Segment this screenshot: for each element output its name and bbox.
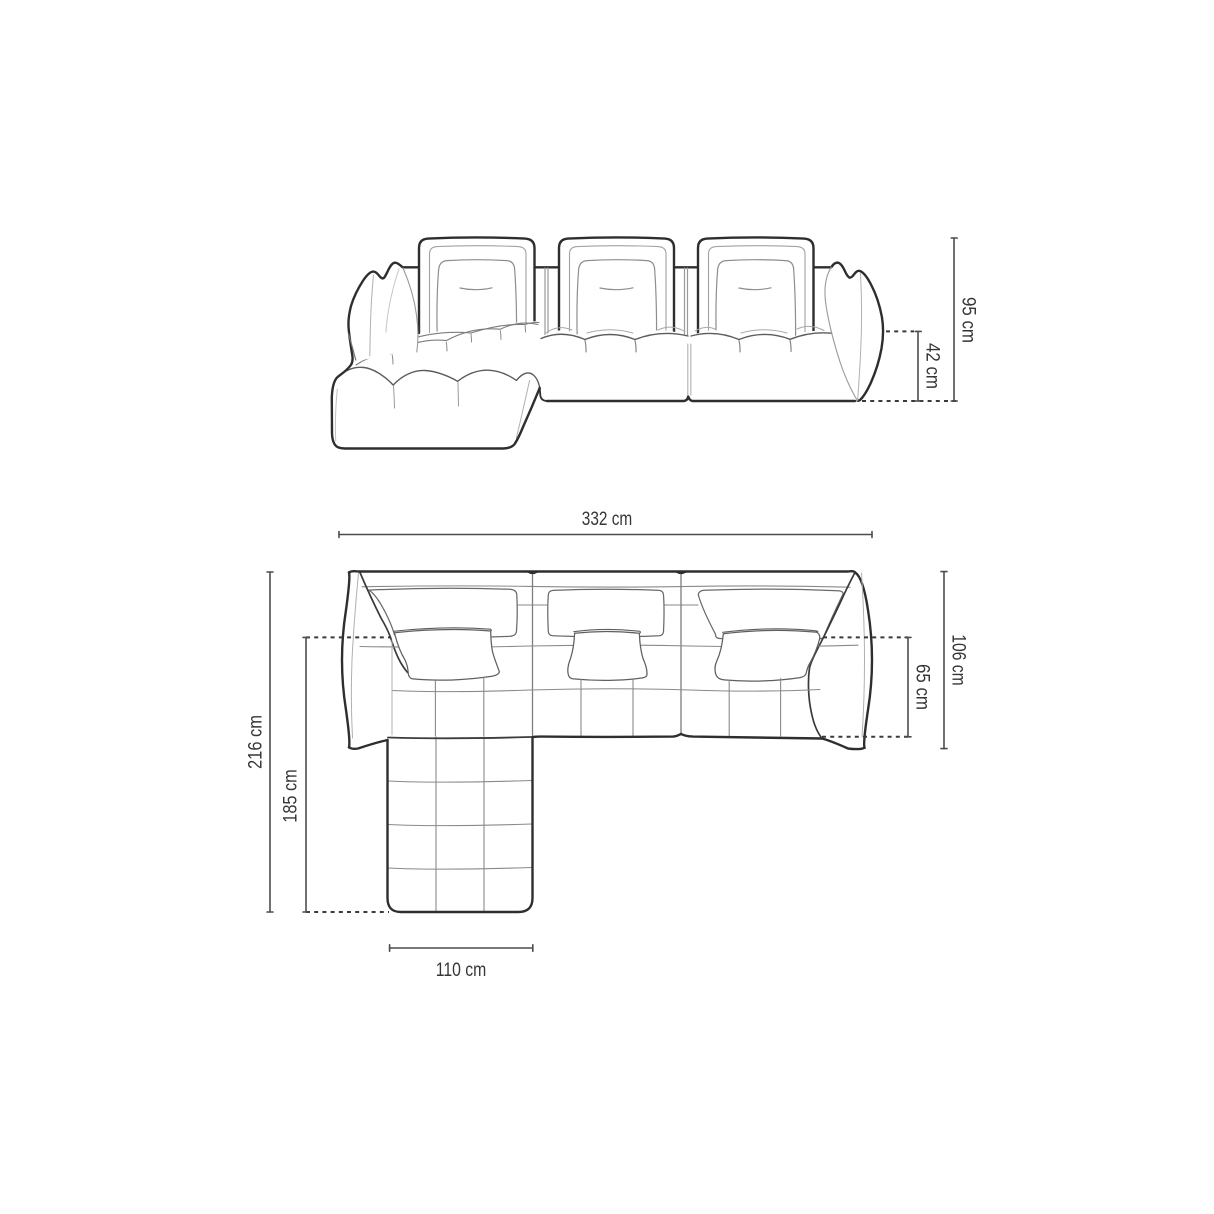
svg-text:185 cm: 185 cm — [280, 769, 302, 823]
svg-text:106 cm: 106 cm — [948, 634, 970, 686]
svg-text:42 cm: 42 cm — [922, 343, 944, 389]
svg-text:332 cm: 332 cm — [582, 508, 633, 530]
svg-text:95 cm: 95 cm — [958, 297, 980, 343]
svg-text:65 cm: 65 cm — [912, 664, 934, 710]
svg-text:216 cm: 216 cm — [245, 715, 267, 769]
svg-text:110 cm: 110 cm — [436, 959, 487, 981]
